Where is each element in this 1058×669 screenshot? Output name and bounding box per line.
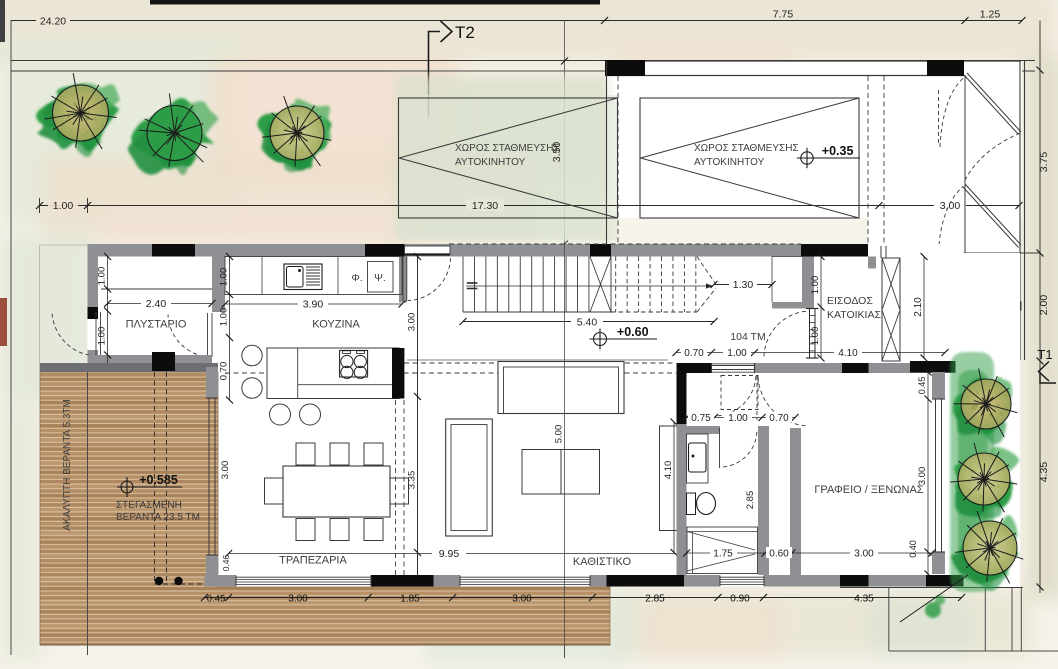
svg-text:0.70: 0.70: [769, 413, 789, 424]
svg-text:ΣΤΕΓΑΣΜΕΝΗ: ΣΤΕΓΑΣΜΕΝΗ: [116, 500, 182, 511]
svg-text:1.00: 1.00: [219, 308, 230, 327]
svg-text:3.00: 3.00: [854, 549, 874, 560]
svg-text:3.90: 3.90: [303, 299, 324, 311]
svg-text:2.10: 2.10: [913, 297, 924, 317]
svg-text:ΑΥΤΟΚΙΝΗΤΟΥ: ΑΥΤΟΚΙΝΗΤΟΥ: [694, 157, 765, 168]
svg-text:ΧΩΡΟΣ ΣΤΑΘΜΕΥΣΗΣ: ΧΩΡΟΣ ΣΤΑΘΜΕΥΣΗΣ: [694, 143, 799, 154]
svg-text:ΑΥΤΟΚΙΝΗΤΟΥ: ΑΥΤΟΚΙΝΗΤΟΥ: [455, 157, 526, 168]
svg-text:0.46: 0.46: [221, 554, 231, 571]
svg-text:3.00: 3.00: [288, 594, 308, 605]
svg-text:0.45: 0.45: [917, 377, 927, 395]
svg-text:Τ1: Τ1: [1037, 347, 1052, 362]
svg-text:3.00: 3.00: [220, 461, 231, 480]
svg-text:Ψ.: Ψ.: [374, 272, 386, 284]
svg-text:ΑΚΑΛΥΠΤΗ ΒΕΡΑΝΤΑ 5.3ΤΜ: ΑΚΑΛΥΠΤΗ ΒΕΡΑΝΤΑ 5.3ΤΜ: [62, 399, 73, 531]
svg-text:2.40: 2.40: [146, 298, 167, 310]
svg-text:1.00: 1.00: [97, 327, 108, 346]
svg-text:ΠΛΥΣΤΑΡΙΟ: ΠΛΥΣΤΑΡΙΟ: [126, 319, 187, 331]
svg-text:2.85: 2.85: [745, 491, 756, 510]
svg-text:5.00: 5.00: [554, 425, 565, 444]
svg-text:0.75: 0.75: [691, 413, 711, 424]
svg-text:ΒΕΡΑΝΤΑ 23.5 ΤΜ: ΒΕΡΑΝΤΑ 23.5 ΤΜ: [116, 512, 200, 523]
svg-text:17.30: 17.30: [472, 200, 498, 212]
svg-text:3.00: 3.00: [407, 313, 418, 332]
svg-text:ΚΑΤΟΙΚΙΑΣ: ΚΑΤΟΙΚΙΑΣ: [827, 309, 881, 321]
svg-text:3.50: 3.50: [551, 142, 563, 163]
svg-text:9.95: 9.95: [439, 548, 460, 560]
svg-text:ΧΩΡΟΣ ΣΤΑΘΜΕΥΣΗΣ: ΧΩΡΟΣ ΣΤΑΘΜΕΥΣΗΣ: [455, 143, 560, 154]
svg-text:1.85: 1.85: [400, 594, 420, 605]
svg-text:2.00: 2.00: [1038, 295, 1050, 316]
svg-text:0.40: 0.40: [908, 540, 918, 558]
svg-text:ΤΡΑΠΕΖΑΡΙΑ: ΤΡΑΠΕΖΑΡΙΑ: [279, 555, 347, 567]
svg-text:1.00: 1.00: [97, 267, 108, 286]
svg-text:Φ.: Φ.: [351, 272, 362, 284]
svg-text:0.70: 0.70: [684, 348, 704, 359]
svg-text:1.25: 1.25: [980, 9, 1001, 21]
svg-text:1.00: 1.00: [810, 327, 821, 346]
svg-text:+0.60: +0.60: [617, 325, 649, 339]
svg-text:1.75: 1.75: [713, 549, 733, 560]
svg-text:+0.585: +0.585: [139, 473, 178, 487]
svg-text:1.00: 1.00: [810, 276, 821, 295]
svg-text:1.00: 1.00: [728, 413, 748, 424]
svg-text:0.70: 0.70: [219, 362, 230, 381]
svg-text:5.40: 5.40: [577, 317, 598, 329]
svg-text:4.35: 4.35: [1038, 462, 1050, 483]
svg-text:2.85: 2.85: [645, 594, 665, 605]
svg-text:3.75: 3.75: [1038, 152, 1050, 173]
svg-text:ΚΟΥΖΙΝΑ: ΚΟΥΖΙΝΑ: [312, 319, 360, 331]
svg-text:3.00: 3.00: [917, 467, 928, 486]
svg-text:0.90: 0.90: [730, 594, 750, 605]
svg-text:3.00: 3.00: [940, 200, 961, 212]
svg-text:ΓΡΑΦΕΙΟ / ΞΕΝΩΝΑΣ: ΓΡΑΦΕΙΟ / ΞΕΝΩΝΑΣ: [814, 484, 923, 496]
svg-text:0.45: 0.45: [207, 594, 226, 605]
svg-text:24.20: 24.20: [40, 16, 66, 28]
svg-text:ΕΙΣΟΔΟΣ: ΕΙΣΟΔΟΣ: [827, 295, 873, 307]
svg-text:3.00: 3.00: [512, 594, 532, 605]
svg-text:4.10: 4.10: [663, 461, 674, 480]
svg-text:7.75: 7.75: [773, 9, 794, 21]
svg-text:1.00: 1.00: [727, 348, 747, 359]
svg-text:ΚΑΘΙΣΤΙΚΟ: ΚΑΘΙΣΤΙΚΟ: [573, 556, 632, 568]
svg-text:1.00: 1.00: [53, 200, 74, 212]
svg-text:4.10: 4.10: [838, 348, 858, 359]
svg-text:4.35: 4.35: [854, 594, 874, 605]
svg-text:+0.35: +0.35: [822, 144, 854, 158]
svg-text:0.60: 0.60: [769, 549, 789, 560]
svg-text:1.30: 1.30: [733, 279, 754, 291]
svg-text:3.35: 3.35: [407, 471, 418, 490]
svg-text:104 ΤΜ: 104 ΤΜ: [730, 331, 765, 343]
svg-text:T2: T2: [455, 23, 475, 42]
svg-text:1.00: 1.00: [219, 268, 230, 287]
